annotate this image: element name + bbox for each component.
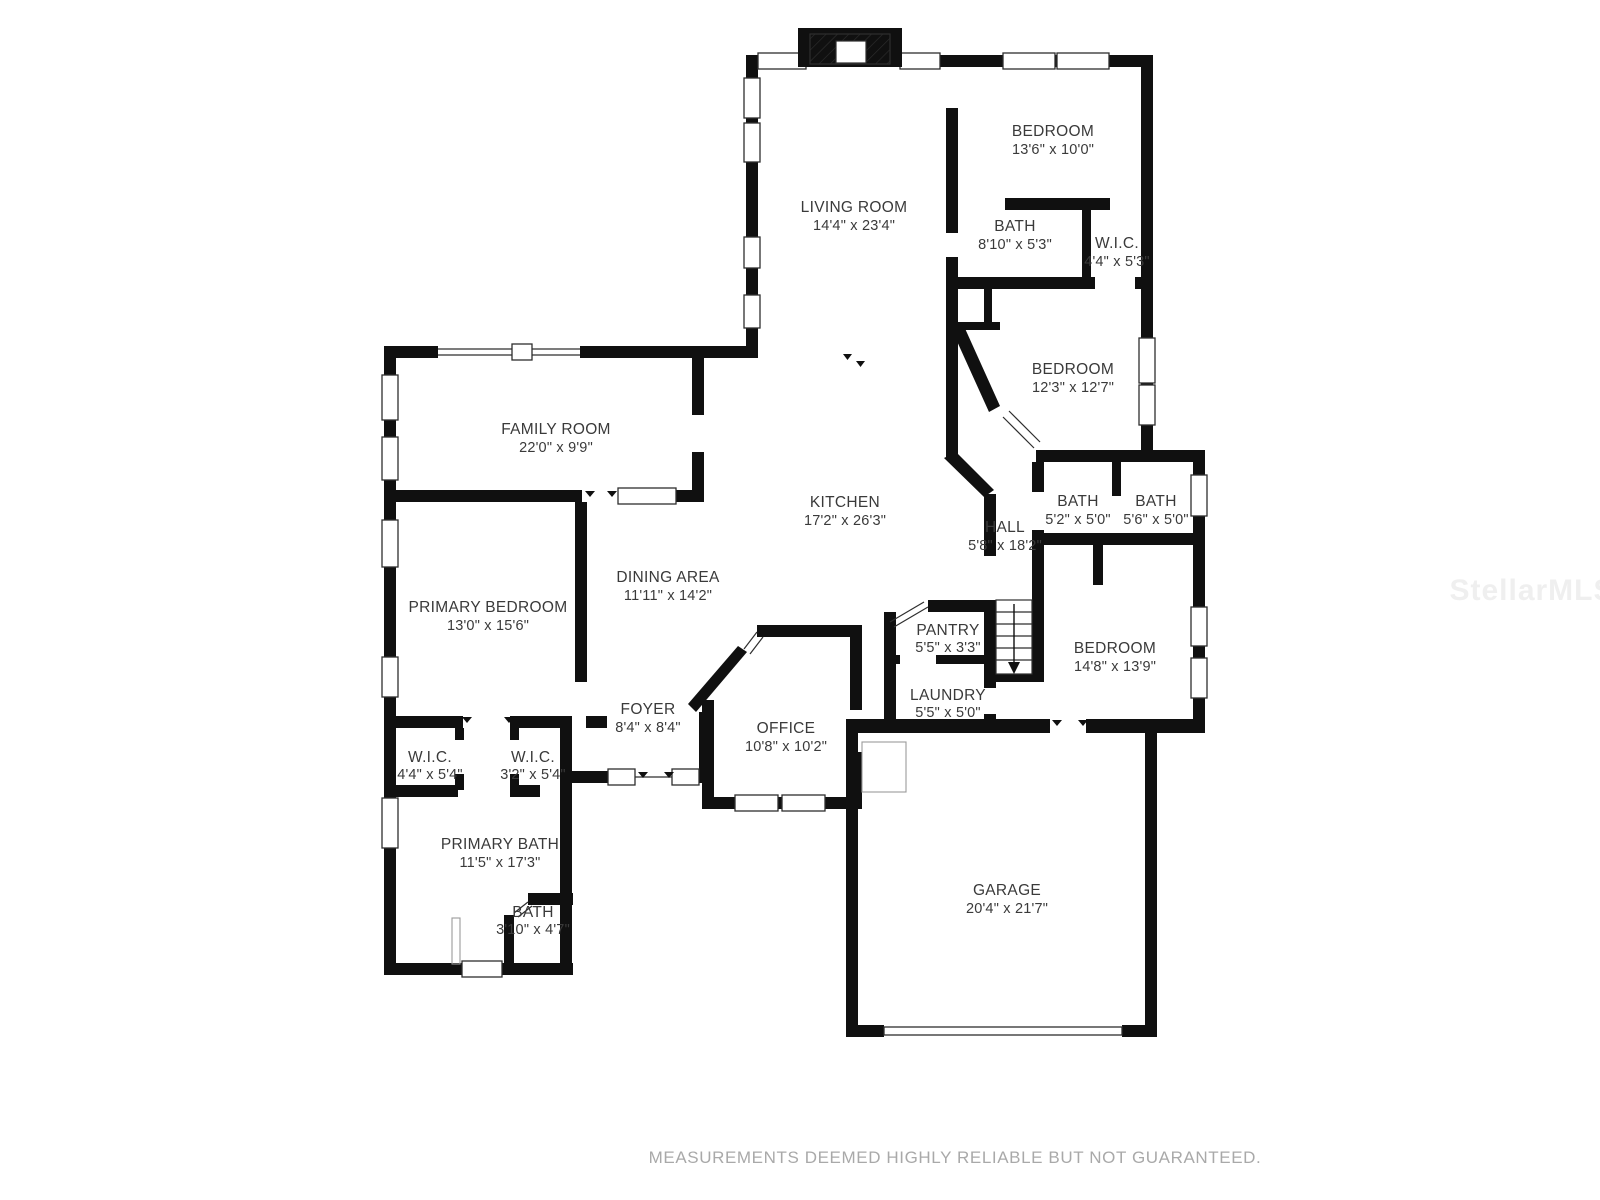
room-dims-bath-primary-wc: 3'10" x 4'7" xyxy=(496,922,570,938)
room-label-bath-ne: BATH xyxy=(994,218,1035,235)
stairs-down-arrow xyxy=(1008,662,1020,674)
room-label-wic-primary-2: W.I.C. xyxy=(511,749,555,766)
room-label-dining-area: DINING AREA xyxy=(616,569,720,586)
room-dims-laundry: 5'5" x 5'0" xyxy=(915,705,981,721)
room-label-kitchen: KITCHEN xyxy=(810,494,880,511)
room-dims-wic-primary-1: 4'4" x 5'4" xyxy=(397,767,463,783)
room-label-primary-bedroom: PRIMARY BEDROOM xyxy=(409,599,568,616)
room-dims-pantry: 5'5" x 3'3" xyxy=(915,640,981,656)
room-dims-primary-bath: 11'5" x 17'3" xyxy=(459,855,540,871)
room-dims-wic-primary-2: 3'2" x 5'4" xyxy=(500,767,566,783)
room-dims-primary-bedroom: 13'0" x 15'6" xyxy=(447,618,529,634)
room-label-foyer: FOYER xyxy=(621,701,676,718)
room-label-pantry: PANTRY xyxy=(916,622,979,639)
walls xyxy=(384,55,1205,1037)
room-label-bath-primary-wc: BATH xyxy=(512,904,553,921)
room-label-primary-bath: PRIMARY BATH xyxy=(441,836,559,853)
entry-stoop xyxy=(862,742,906,792)
room-label-wic-primary-1: W.I.C. xyxy=(408,749,452,766)
room-label-garage: GARAGE xyxy=(973,882,1041,899)
shower-glass xyxy=(452,918,460,964)
room-dims-bedroom-ne: 13'6" x 10'0" xyxy=(1012,142,1094,158)
room-label-living-room: LIVING ROOM xyxy=(801,199,908,216)
room-label-bedroom-e: BEDROOM xyxy=(1032,361,1114,378)
room-label-bedroom-se: BEDROOM xyxy=(1074,640,1156,657)
room-dims-family-room: 22'0" x 9'9" xyxy=(519,440,593,456)
room-dims-foyer: 8'4" x 8'4" xyxy=(615,720,681,736)
room-dims-office: 10'8" x 10'2" xyxy=(745,739,827,755)
room-dims-bath-mid-right: 5'6" x 5'0" xyxy=(1123,512,1189,528)
room-dims-garage: 20'4" x 21'7" xyxy=(966,901,1048,917)
room-label-laundry: LAUNDRY xyxy=(910,687,986,704)
fireplace xyxy=(798,28,902,67)
room-labels: LIVING ROOM 14'4" x 23'4" BEDROOM 13'6" … xyxy=(397,123,1189,938)
room-label-wic-ne: W.I.C. xyxy=(1095,235,1139,252)
room-dims-bedroom-e: 12'3" x 12'7" xyxy=(1032,380,1114,396)
room-label-office: OFFICE xyxy=(757,720,816,737)
room-dims-kitchen: 17'2" x 26'3" xyxy=(804,513,886,529)
disclaimer-text: MEASUREMENTS DEEMED HIGHLY RELIABLE BUT … xyxy=(649,1148,1262,1167)
room-label-bath-mid-left: BATH xyxy=(1057,493,1098,510)
room-dims-bath-mid-left: 5'2" x 5'0" xyxy=(1045,512,1111,528)
room-dims-dining-area: 11'11" x 14'2" xyxy=(624,588,712,604)
room-label-family-room: FAMILY ROOM xyxy=(501,421,611,438)
room-dims-wic-ne: 4'4" x 5'3" xyxy=(1084,254,1150,270)
room-label-bath-mid-right: BATH xyxy=(1135,493,1176,510)
room-label-bedroom-ne: BEDROOM xyxy=(1012,123,1094,140)
floor-plan-page: LIVING ROOM 14'4" x 23'4" BEDROOM 13'6" … xyxy=(0,0,1600,1200)
room-dims-bath-ne: 8'10" x 5'3" xyxy=(978,237,1052,253)
floor-plan-svg: LIVING ROOM 14'4" x 23'4" BEDROOM 13'6" … xyxy=(0,0,1600,1200)
stellar-mls-watermark: StellarMLS xyxy=(1449,574,1600,607)
room-dims-hall: 5'8" x 18'2" xyxy=(968,538,1042,554)
room-dims-living-room: 14'4" x 23'4" xyxy=(813,218,895,234)
room-label-hall: HALL xyxy=(985,519,1025,536)
room-dims-bedroom-se: 14'8" x 13'9" xyxy=(1074,659,1156,675)
stairs xyxy=(996,600,1032,674)
